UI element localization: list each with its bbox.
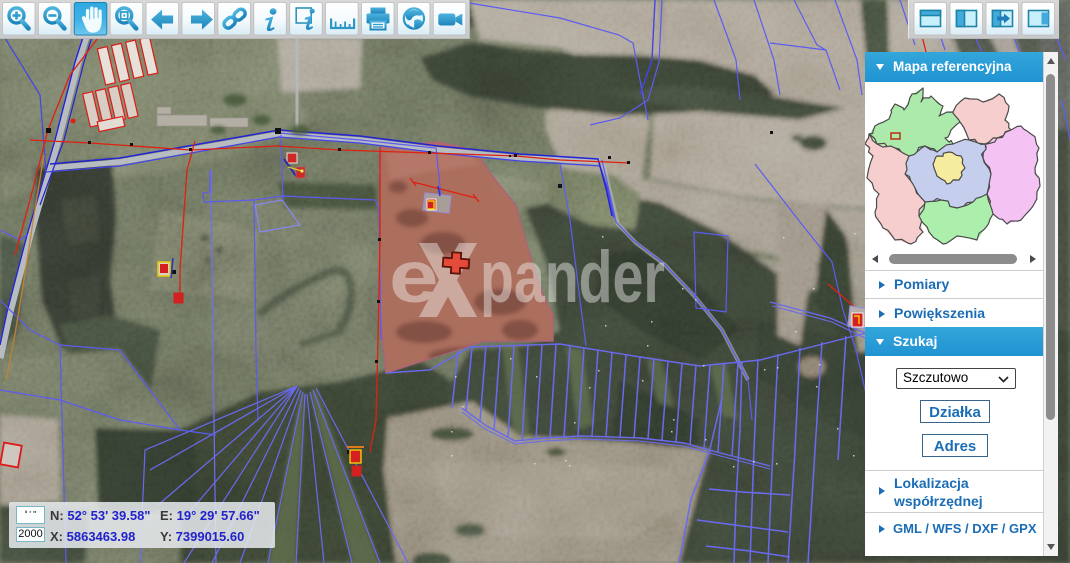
svg-text:pander: pander: [480, 236, 665, 318]
